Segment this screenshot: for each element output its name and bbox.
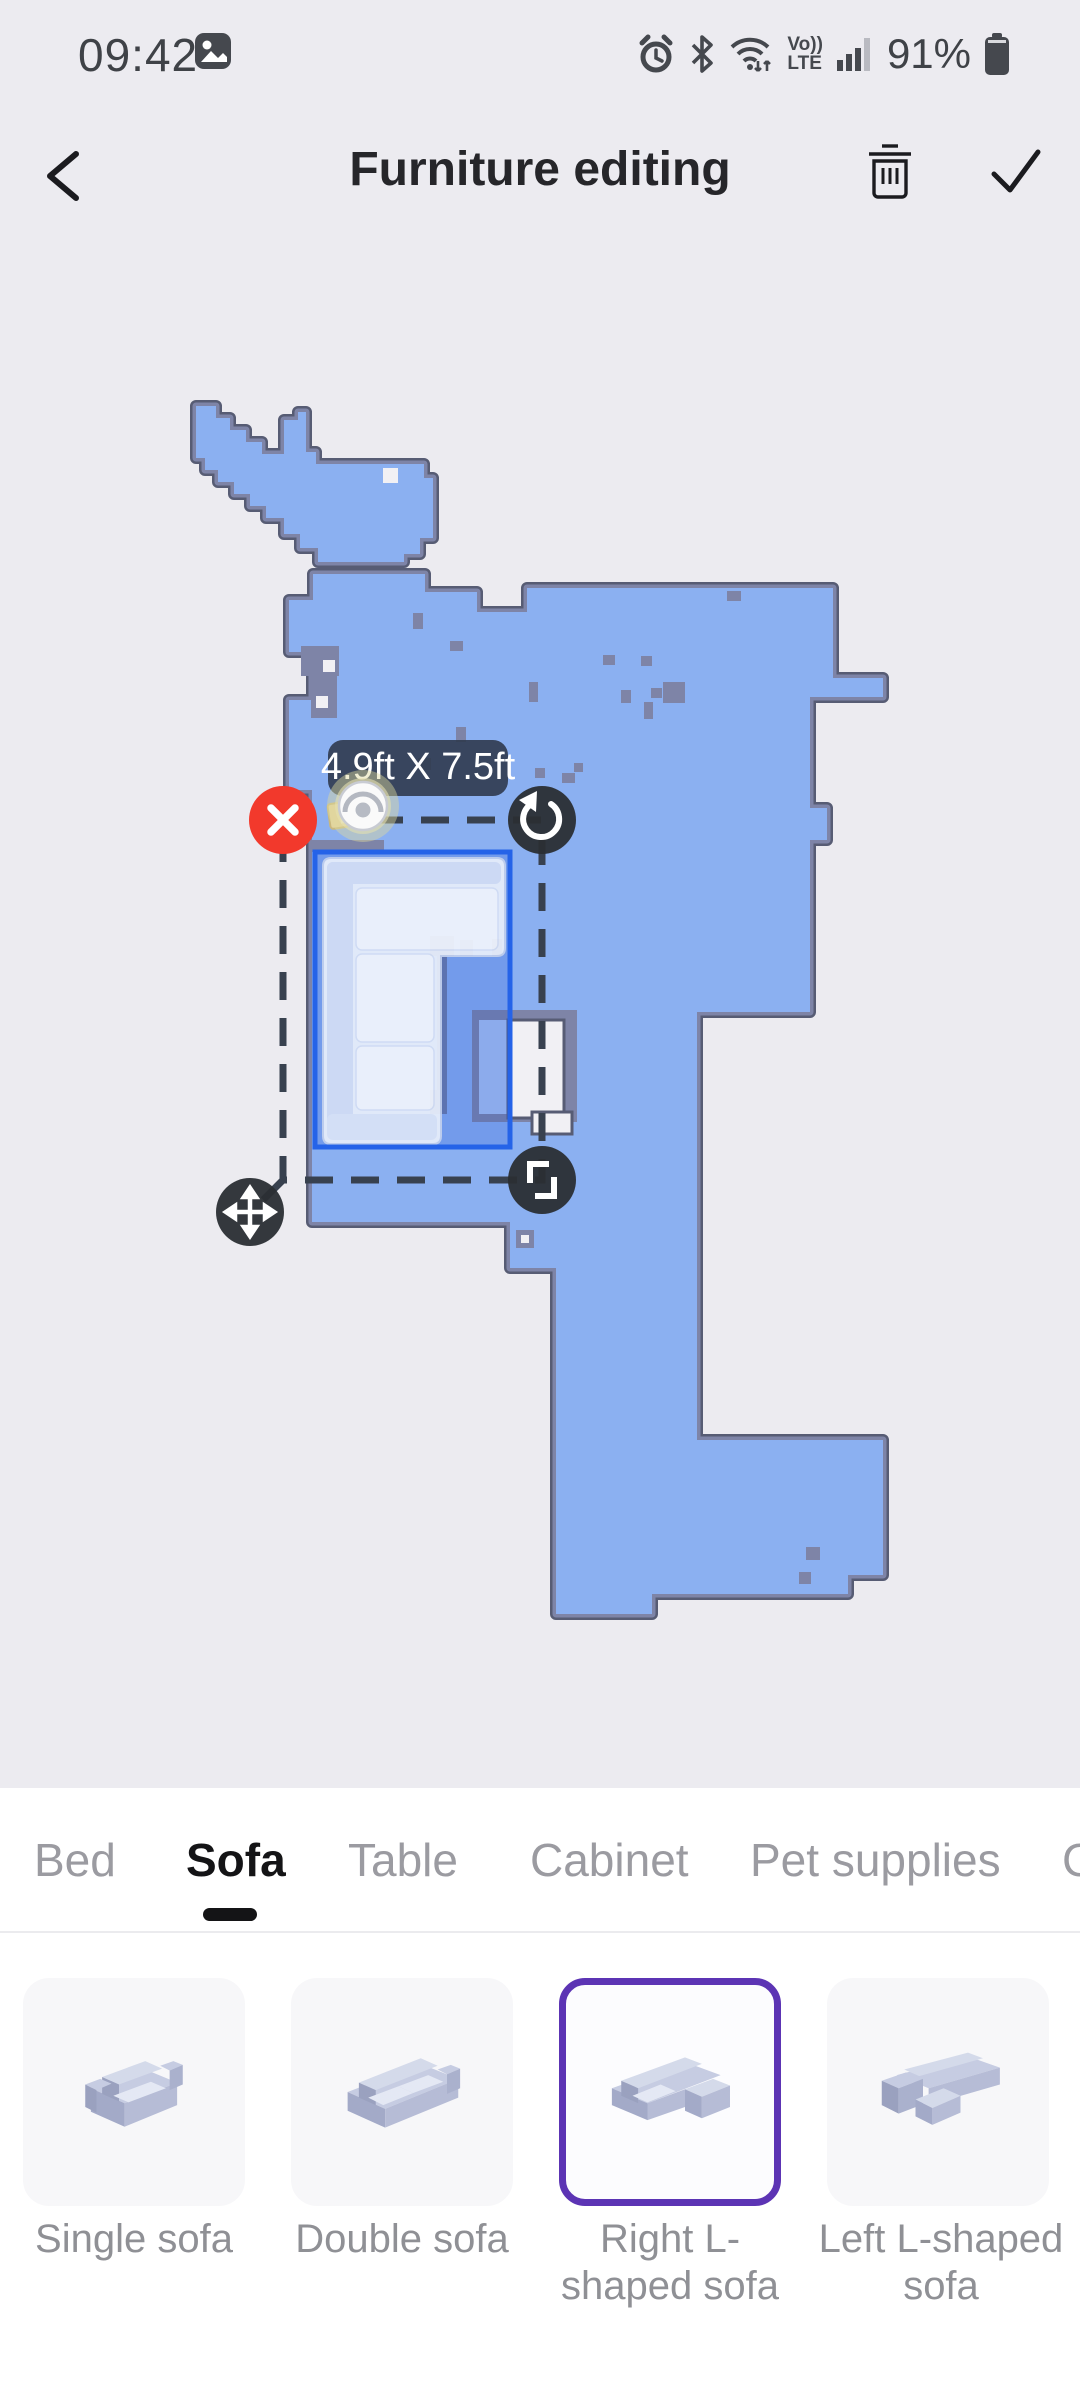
trash-icon [862, 130, 918, 210]
battery-icon [984, 31, 1010, 77]
tab-cabinet[interactable]: Cabinet [530, 1788, 689, 1931]
map-area[interactable]: 4.9ft X 7.5ft [0, 0, 1080, 1788]
robot-icon [327, 770, 399, 842]
battery-percent: 91% [887, 30, 971, 78]
furniture-overlay-sofa[interactable] [315, 852, 510, 1147]
rotate-handle[interactable] [508, 786, 576, 854]
delete-furniture-button[interactable] [862, 130, 918, 210]
resize-handle[interactable] [508, 1146, 576, 1214]
alarm-icon [636, 33, 676, 75]
move-handle[interactable] [216, 1178, 284, 1246]
header: Furniture editing [0, 118, 1080, 228]
tab-pet-supplies[interactable]: Pet supplies [750, 1788, 1001, 1931]
bluetooth-icon [689, 33, 715, 75]
furniture-card-single-sofa[interactable] [23, 1978, 245, 2206]
wifi-icon [728, 33, 774, 75]
furniture-label: Left L-shaped sofa [811, 2216, 1071, 2310]
status-bar: 09:42 Vo [0, 22, 1080, 82]
double-sofa-image [312, 2017, 492, 2167]
single-sofa-image [44, 2017, 224, 2167]
furniture-label: Right L-shaped sofa [540, 2216, 800, 2310]
clock: 09:42 [78, 28, 198, 82]
signal-icon [836, 33, 872, 75]
tab-bed[interactable]: Bed [34, 1788, 116, 1931]
furniture-picker-sheet: Bed Sofa Table Cabinet Pet supplies C [0, 1788, 1080, 2400]
active-tab-indicator [203, 1908, 257, 1921]
furniture-card-double-sofa[interactable] [291, 1978, 513, 2206]
tab-more-partial[interactable]: C [1062, 1788, 1080, 1931]
floor-map-room-small[interactable] [196, 406, 433, 562]
confirm-button[interactable] [986, 134, 1046, 206]
tab-table[interactable]: Table [348, 1788, 458, 1931]
furniture-card-right-l-sofa[interactable] [559, 1978, 781, 2206]
left-l-sofa-image [848, 2017, 1028, 2167]
delete-handle[interactable] [249, 786, 317, 854]
furniture-editing-screen: 4.9ft X 7.5ft [0, 0, 1080, 2400]
furniture-label: Double sofa [272, 2216, 532, 2263]
page-title: Furniture editing [0, 142, 1080, 197]
gallery-notification-icon [194, 32, 232, 70]
right-l-sofa-image [580, 2017, 760, 2167]
furniture-card-left-l-sofa[interactable] [827, 1978, 1049, 2206]
divider [0, 1931, 1080, 1933]
volte-icon: Vo)) LTE [787, 35, 823, 73]
check-icon [986, 134, 1046, 206]
furniture-label: Single sofa [4, 2216, 264, 2263]
